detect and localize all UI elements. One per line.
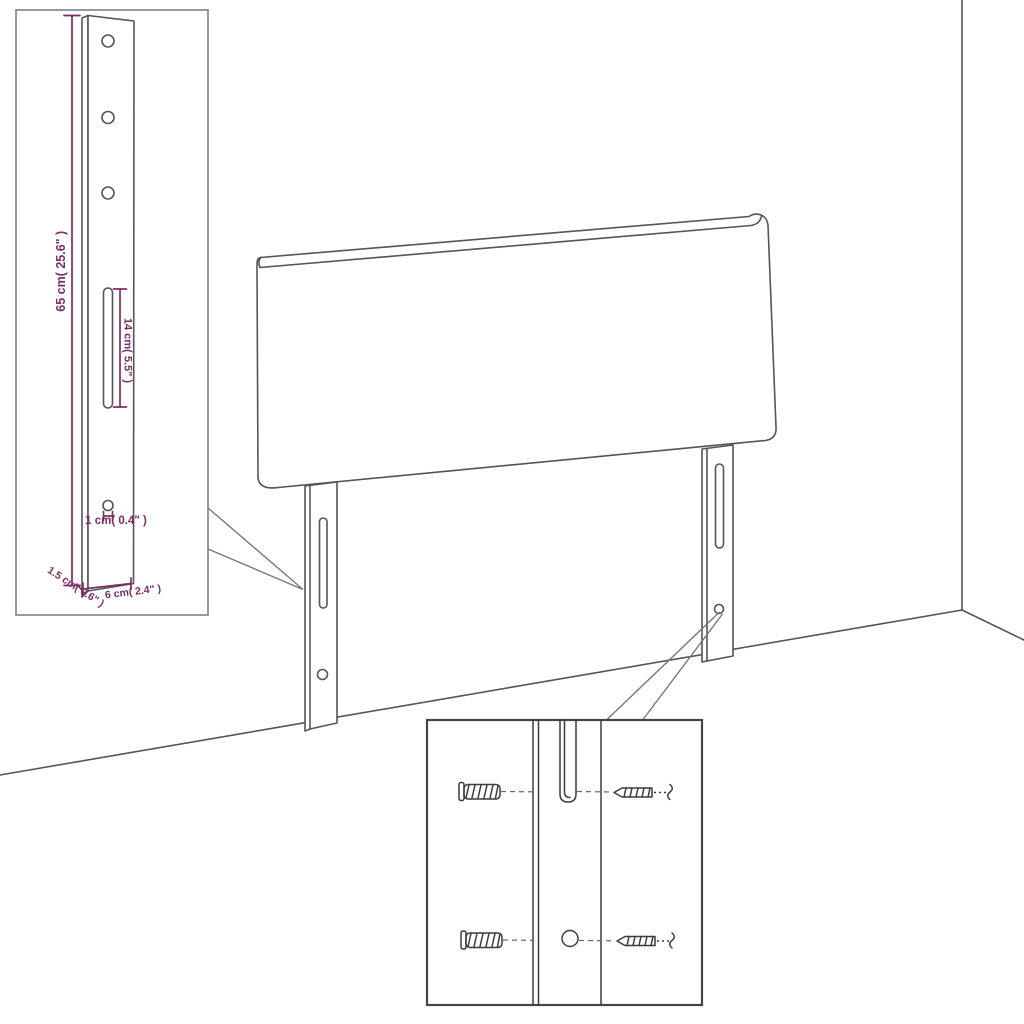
headboard-line-art (0, 0, 1024, 1024)
right-leg (702, 445, 733, 662)
headboard-panel (257, 214, 776, 488)
headboard-panel-face (257, 214, 776, 488)
height-dimension-label: 65 cm( 25.6" ) (55, 216, 68, 326)
slot-dimension-label: 14 cm( 5.5" ) (122, 306, 133, 396)
inset-leg-side-face (82, 16, 88, 598)
inset-leg-front-face (88, 16, 134, 592)
diagram-canvas: 65 cm( 25.6" ) 14 cm( 5.5" ) 1 cm( 0.4" … (0, 0, 1024, 1024)
callout-wedge-left-leg (208, 508, 303, 590)
floor-line-right (962, 610, 1024, 640)
left-leg (305, 482, 337, 731)
callout-wedges (208, 508, 723, 720)
mounting-detail-inset (427, 720, 702, 1005)
hole-dimension-label: 1 cm( 0.4" ) (66, 516, 166, 528)
